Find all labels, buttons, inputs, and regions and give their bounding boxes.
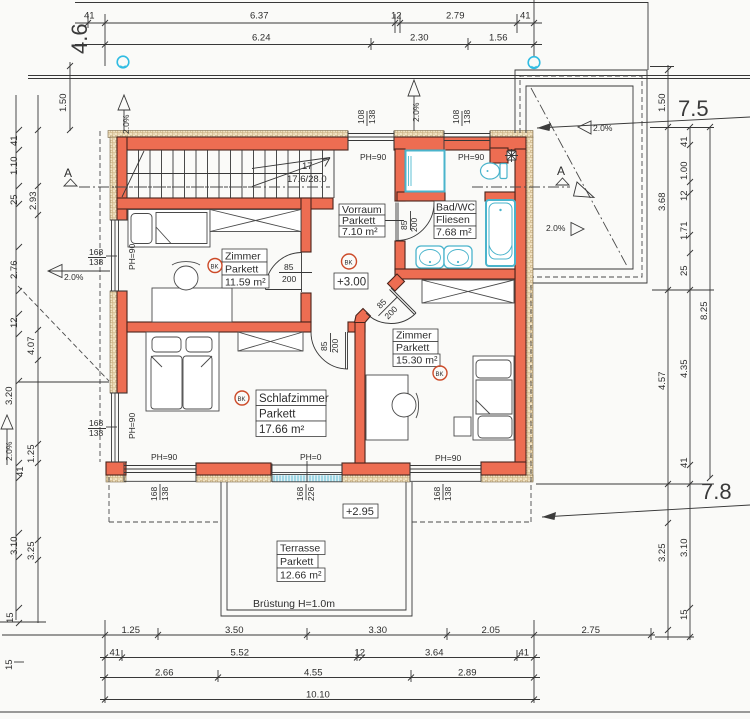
svg-text:11.59 m²: 11.59 m²: [225, 277, 266, 289]
svg-text:85: 85: [319, 341, 329, 351]
svg-text:2.30: 2.30: [410, 33, 429, 44]
svg-text:Fliesen: Fliesen: [436, 214, 470, 226]
svg-text:3.10: 3.10: [679, 539, 690, 558]
svg-text:8.25: 8.25: [699, 302, 710, 321]
svg-text:3.10: 3.10: [9, 537, 20, 556]
svg-text:Schlafzimmer: Schlafzimmer: [259, 393, 329, 405]
svg-text:25: 25: [679, 265, 690, 276]
svg-text:2.75: 2.75: [582, 625, 601, 636]
svg-text:41: 41: [679, 457, 690, 468]
svg-text:6.37: 6.37: [250, 11, 269, 22]
svg-text:2.0%: 2.0%: [121, 114, 131, 134]
svg-text:+3.00: +3.00: [337, 277, 366, 289]
svg-text:10.10: 10.10: [306, 690, 330, 701]
svg-text:BK: BK: [436, 372, 444, 378]
svg-text:4.6: 4.6: [67, 23, 92, 54]
svg-text:3.20: 3.20: [4, 387, 15, 406]
svg-text:PH=90: PH=90: [127, 413, 137, 439]
svg-text:PH=90: PH=90: [435, 453, 461, 463]
svg-text:168: 168: [432, 487, 442, 501]
svg-text:4.07: 4.07: [26, 337, 37, 356]
svg-text:PH=90: PH=90: [151, 452, 177, 462]
svg-text:1.50: 1.50: [58, 94, 69, 113]
svg-text:2.0%: 2.0%: [4, 441, 14, 461]
svg-text:138: 138: [443, 487, 453, 501]
svg-text:Zimmer: Zimmer: [225, 251, 261, 263]
svg-text:4.55: 4.55: [304, 668, 323, 679]
svg-text:PH=0: PH=0: [300, 452, 322, 462]
svg-text:Parkett: Parkett: [259, 409, 296, 421]
svg-text:41: 41: [15, 466, 26, 477]
svg-text:+2.95: +2.95: [346, 506, 374, 518]
svg-text:PH=90: PH=90: [458, 152, 484, 162]
svg-text:2.0%: 2.0%: [593, 123, 613, 133]
svg-text:41: 41: [679, 136, 690, 147]
svg-text:3.50: 3.50: [225, 625, 244, 636]
svg-text:1.25: 1.25: [26, 445, 37, 464]
svg-text:A: A: [557, 164, 565, 178]
svg-text:1.50: 1.50: [657, 94, 668, 113]
svg-text:5.52: 5.52: [231, 648, 250, 659]
svg-text:2.0%: 2.0%: [546, 223, 566, 233]
svg-text:200: 200: [330, 339, 340, 353]
svg-text:BK: BK: [238, 397, 246, 403]
svg-text:2.66: 2.66: [155, 668, 174, 679]
svg-text:41: 41: [84, 11, 95, 22]
svg-text:1.25: 1.25: [122, 625, 141, 636]
svg-text:138: 138: [89, 257, 103, 267]
svg-text:2.76: 2.76: [9, 261, 20, 280]
svg-text:168: 168: [295, 487, 305, 501]
svg-text:12.66 m²: 12.66 m²: [280, 570, 322, 582]
svg-text:Terrasse: Terrasse: [280, 543, 320, 555]
svg-text:15: 15: [5, 612, 16, 623]
svg-text:4.35: 4.35: [679, 360, 690, 379]
svg-text:41: 41: [9, 135, 20, 146]
svg-text:BK: BK: [211, 265, 219, 271]
svg-text:17.6/28.0: 17.6/28.0: [287, 174, 327, 185]
svg-text:1.10: 1.10: [9, 157, 20, 176]
svg-text:7.68 m²: 7.68 m²: [436, 227, 472, 239]
svg-text:7.10 m²: 7.10 m²: [342, 226, 378, 238]
svg-text:12: 12: [355, 648, 366, 659]
svg-text:A: A: [64, 166, 72, 180]
svg-text:1.00: 1.00: [679, 162, 690, 181]
svg-text:41: 41: [519, 648, 530, 659]
svg-text:1.71: 1.71: [679, 222, 690, 241]
svg-text:17.66 m²: 17.66 m²: [259, 424, 305, 436]
svg-text:138: 138: [367, 110, 377, 124]
svg-text:15: 15: [4, 659, 15, 670]
svg-text:3.68: 3.68: [657, 193, 668, 212]
svg-text:108: 108: [451, 110, 461, 124]
svg-text:Bad/WC: Bad/WC: [436, 202, 476, 214]
svg-text:25: 25: [9, 194, 20, 205]
svg-text:7.5: 7.5: [678, 96, 709, 121]
svg-text:Parkett: Parkett: [396, 342, 429, 354]
svg-text:7.8: 7.8: [701, 479, 732, 504]
svg-text:6.24: 6.24: [252, 33, 271, 44]
svg-text:3.64: 3.64: [425, 648, 444, 659]
svg-text:41: 41: [520, 11, 531, 22]
svg-text:3.30: 3.30: [369, 625, 388, 636]
svg-text:BK: BK: [345, 261, 353, 267]
svg-text:1.56: 1.56: [489, 33, 508, 44]
svg-text:200: 200: [282, 274, 296, 284]
svg-text:12: 12: [9, 317, 20, 328]
svg-text:41: 41: [110, 648, 121, 659]
svg-text:15: 15: [679, 609, 690, 620]
svg-text:2.0%: 2.0%: [64, 272, 84, 282]
svg-text:2.89: 2.89: [458, 668, 477, 679]
svg-text:2.93: 2.93: [28, 192, 39, 211]
svg-text:17: 17: [302, 161, 313, 172]
svg-text:Parkett: Parkett: [225, 264, 258, 276]
svg-text:2.0%: 2.0%: [411, 102, 421, 122]
svg-text:138: 138: [89, 428, 103, 438]
svg-text:226: 226: [306, 487, 316, 501]
svg-text:138: 138: [462, 110, 472, 124]
svg-text:168: 168: [149, 487, 159, 501]
svg-text:85: 85: [284, 262, 294, 272]
svg-text:2.79: 2.79: [446, 11, 465, 22]
svg-text:PH=90: PH=90: [127, 244, 137, 270]
svg-text:12: 12: [679, 190, 690, 201]
svg-text:Zimmer: Zimmer: [396, 330, 432, 342]
svg-text:168: 168: [89, 247, 103, 257]
svg-text:108: 108: [356, 110, 366, 124]
svg-text:Brüstung H=1.0m: Brüstung H=1.0m: [253, 598, 335, 610]
svg-text:PH=90: PH=90: [360, 152, 386, 162]
svg-text:4.57: 4.57: [657, 372, 668, 391]
svg-text:85: 85: [399, 220, 409, 230]
svg-text:Parkett: Parkett: [280, 556, 313, 568]
svg-text:2.05: 2.05: [482, 625, 501, 636]
svg-text:3.25: 3.25: [26, 542, 37, 561]
svg-text:168: 168: [89, 418, 103, 428]
svg-text:3.25: 3.25: [657, 544, 668, 563]
svg-text:138: 138: [160, 487, 170, 501]
svg-text:15.30 m²: 15.30 m²: [396, 355, 438, 367]
